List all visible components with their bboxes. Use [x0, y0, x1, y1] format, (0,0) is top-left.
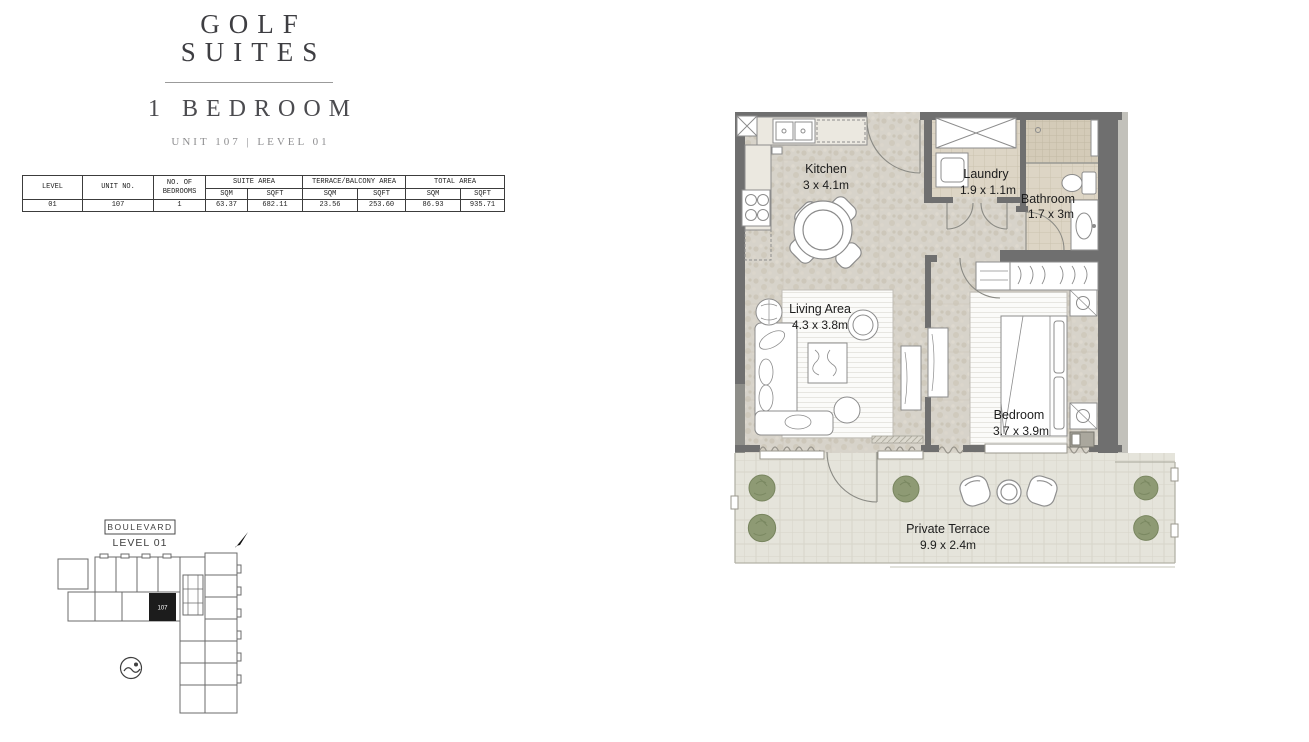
- cell-suite-sqm: 63.37: [206, 200, 248, 212]
- exterior-wall-band: [1118, 112, 1128, 453]
- stool: [834, 397, 860, 423]
- unit-107-label: 107: [157, 606, 168, 612]
- living-label: Living Area: [789, 302, 851, 316]
- unit-level-subtitle: UNIT 107 | LEVEL 01: [118, 136, 380, 148]
- brand-header: GOLF SUITES 1 BEDROOM UNIT 107 | LEVEL 0…: [118, 10, 380, 148]
- terrace-dims: 9.9 x 2.4m: [920, 538, 976, 552]
- col-suite-area: SUITE AREA: [206, 176, 303, 189]
- bedroom-label: Bedroom: [994, 408, 1045, 422]
- brand-divider: [165, 82, 333, 83]
- vanity-sink-icon: [1071, 200, 1098, 250]
- floorplan-brochure-page: GOLF SUITES 1 BEDROOM UNIT 107 | LEVEL 0…: [0, 0, 1309, 742]
- col-suite-sqm: SQM: [206, 189, 248, 200]
- laundry-dims: 1.9 x 1.1m: [960, 183, 1016, 197]
- cell-total-sqm: 86.93: [406, 200, 461, 212]
- laundry-label: Laundry: [963, 167, 1009, 181]
- site-key-plan: BOULEVARD LEVEL 01 107: [55, 515, 285, 737]
- nightstand: [1070, 403, 1097, 429]
- col-terrace-sqft: SQFT: [358, 189, 406, 200]
- nightstand: [1070, 290, 1097, 316]
- swimmer-icon: [121, 658, 142, 679]
- entry-threshold: [872, 436, 923, 443]
- table-row: 01 107 1 63.37 682.11 23.56 253.60 86.93…: [23, 200, 505, 212]
- floor-plan: Kitchen 3 x 4.1m Laundry 1.9 x 1.1m Bath…: [720, 100, 1202, 578]
- north-arrow-icon: [235, 532, 248, 548]
- col-total-sqft: SQFT: [461, 189, 505, 200]
- cell-unit: 107: [83, 200, 154, 212]
- kitchen-label: Kitchen: [805, 162, 847, 176]
- col-terrace-sqm: SQM: [303, 189, 358, 200]
- building-outline: [58, 553, 241, 713]
- brand-name-line1: GOLF: [118, 10, 380, 38]
- cell-terrace-sqm: 23.56: [303, 200, 358, 212]
- col-total-area: TOTAL AREA: [406, 176, 505, 189]
- boulevard-label: BOULEVARD: [107, 522, 172, 532]
- console-panel: [901, 346, 921, 410]
- wardrobe: [976, 262, 1098, 290]
- living-dims: 4.3 x 3.8m: [792, 318, 848, 332]
- plan-type-title: 1 BEDROOM: [118, 96, 380, 123]
- brand-name-line2: SUITES: [118, 38, 380, 66]
- kitchen-dims: 3 x 4.1m: [803, 178, 849, 192]
- col-suite-sqft: SQFT: [248, 189, 303, 200]
- col-bedrooms: NO. OF BEDROOMS: [154, 176, 206, 200]
- col-level: LEVEL: [23, 176, 83, 200]
- cell-total-sqft: 935.71: [461, 200, 505, 212]
- col-terrace-area: TERRACE/BALCONY AREA: [303, 176, 406, 189]
- area-summary-table: LEVEL UNIT NO. NO. OF BEDROOMS SUITE ARE…: [22, 175, 505, 212]
- col-total-sqm: SQM: [406, 189, 461, 200]
- bedroom-dims: 3.7 x 3.9m: [993, 424, 1049, 438]
- cell-bedrooms: 1: [154, 200, 206, 212]
- shower-floor: [1026, 113, 1098, 163]
- cell-terrace-sqft: 253.60: [358, 200, 406, 212]
- terrace-label: Private Terrace: [906, 522, 990, 536]
- stove-icon: [742, 190, 770, 226]
- cell-suite-sqft: 682.11: [248, 200, 303, 212]
- corridor-panel: [928, 328, 948, 397]
- bathroom-label: Bathroom: [1021, 192, 1075, 206]
- coffee-table: [808, 343, 847, 383]
- cell-level: 01: [23, 200, 83, 212]
- col-unit-no: UNIT NO.: [83, 176, 154, 200]
- level-label: LEVEL 01: [113, 537, 168, 549]
- bathroom-dims: 1.7 x 3m: [1028, 207, 1074, 221]
